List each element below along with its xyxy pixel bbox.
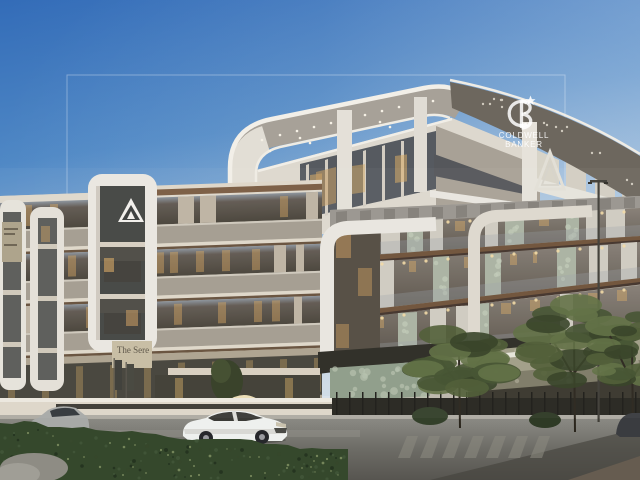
svg-text:BANKER: BANKER	[505, 140, 543, 149]
svg-text:COLDWELL: COLDWELL	[499, 131, 549, 140]
